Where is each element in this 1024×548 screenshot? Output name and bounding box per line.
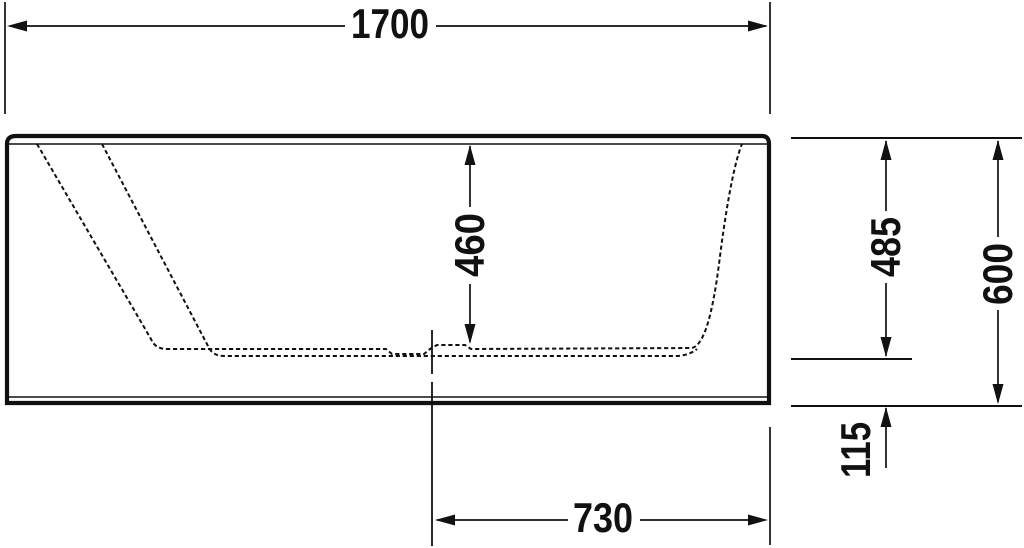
technical-drawing-canvas: 1700 460 485 <box>0 0 1024 548</box>
bathtub-dimension-diagram: 1700 460 485 <box>0 0 1024 548</box>
dim-460: 460 <box>446 145 493 344</box>
tub-interior-profile-dashed <box>37 144 742 354</box>
dim-1700-arrow-right-icon <box>748 21 768 32</box>
dim-1700-arrow-left-icon <box>7 21 27 32</box>
dim-115-arrow-up-icon <box>881 407 892 427</box>
dim-485-label: 485 <box>862 217 909 277</box>
dim-1700-label: 1700 <box>351 0 429 47</box>
dim-600: 600 <box>974 140 1021 404</box>
tub-shell-profile-dashed <box>102 144 697 356</box>
dim-485: 485 <box>862 140 909 357</box>
dim-730-label: 730 <box>573 494 633 541</box>
dim-730-arrow-left-icon <box>435 515 455 526</box>
tub-outline <box>7 136 769 403</box>
dim-485-arrow-down-icon <box>881 337 892 357</box>
dim-600-arrow-up-icon <box>993 140 1004 160</box>
dim-460-label: 460 <box>446 213 493 277</box>
dim-485-arrow-up-icon <box>881 140 892 160</box>
dim-730-arrow-right-icon <box>748 515 768 526</box>
dim-600-arrow-down-icon <box>993 384 1004 404</box>
dim-730: 730 <box>435 427 770 545</box>
dim-1700: 1700 <box>5 0 770 114</box>
dim-460-arrow-up-icon <box>465 145 476 165</box>
tub-body <box>7 136 769 546</box>
dim-460-arrow-down-icon <box>465 324 476 344</box>
dim-115: 115 <box>832 407 892 478</box>
dim-600-label: 600 <box>974 243 1021 305</box>
dim-115-label: 115 <box>832 422 879 478</box>
